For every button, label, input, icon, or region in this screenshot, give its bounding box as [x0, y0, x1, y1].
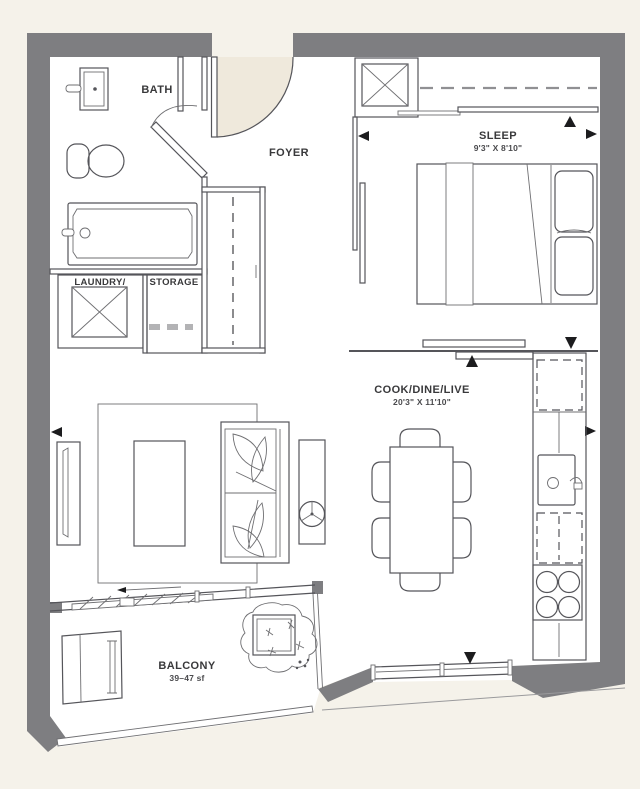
- floor-areas: [50, 57, 600, 747]
- storage-label: STORAGE: [150, 277, 199, 288]
- cook-dine-live-dimensions: 20'3" X 11'10": [393, 397, 451, 407]
- bath-bottom-wall: [50, 269, 207, 274]
- bath-label: BATH: [141, 84, 172, 96]
- partition-panel-upper: [423, 340, 525, 347]
- entry-jamb-wall: [202, 57, 207, 110]
- closet-top-wall: [202, 187, 265, 192]
- patio-slab-edge: [322, 688, 625, 710]
- closet-east-wall: [260, 187, 265, 353]
- balcony-area: 39–47 sf: [169, 673, 204, 683]
- sleep-west-wall: [353, 117, 357, 250]
- floor-plan-svg: BATH FOYER LAUNDRY/ STORAGE: [0, 0, 640, 789]
- top-wall-right: [293, 33, 625, 57]
- top-wall-left: [27, 33, 212, 57]
- laundry-label: LAUNDRY/: [74, 277, 125, 288]
- floor-plan: BATH FOYER LAUNDRY/ STORAGE: [0, 0, 640, 789]
- sleep-dimensions: 9'3" X 8'10": [474, 143, 523, 153]
- sofa-icon: [221, 422, 289, 563]
- balcony-label: BALCONY: [158, 660, 215, 672]
- laundry-divider-wall: [143, 275, 147, 353]
- door-handle: [120, 598, 134, 606]
- cook-dine-live-label: COOK/DINE/LIVE: [374, 384, 469, 396]
- sleep-pocket-door: [360, 183, 365, 283]
- closet-door-panel-right: [458, 107, 598, 112]
- balcony-post: [312, 581, 323, 594]
- coffee-table-icon: [134, 441, 185, 546]
- entry-door-leaf: [212, 57, 218, 137]
- partition-panel-lower: [456, 352, 533, 359]
- closet-west-wall: [202, 177, 207, 353]
- sleep-label: SLEEP: [479, 130, 517, 142]
- bath-east-wall: [178, 57, 183, 111]
- closet-door-panel-left: [398, 111, 460, 115]
- foyer-label: FOYER: [269, 147, 309, 159]
- closet-bottom-wall: [202, 348, 265, 353]
